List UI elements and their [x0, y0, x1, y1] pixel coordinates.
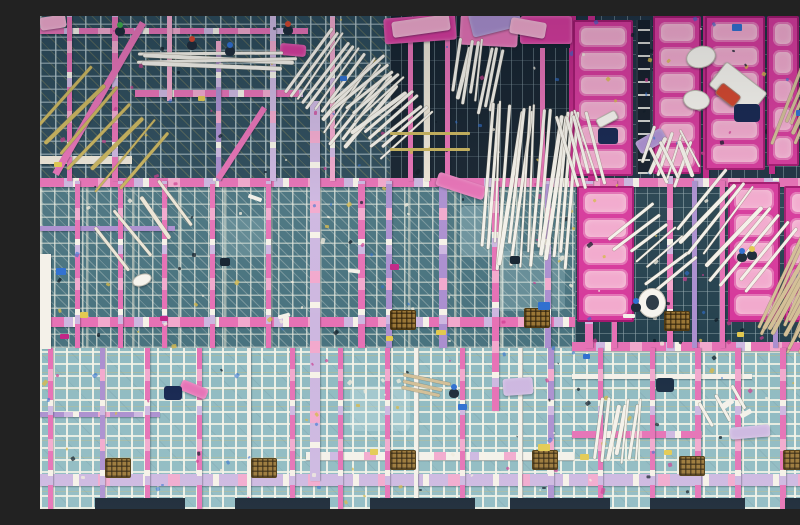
panel-insulation-block	[583, 269, 628, 291]
construction-debris	[54, 162, 62, 167]
formwork-beam-vertical	[266, 181, 271, 348]
debris-speckle	[312, 473, 316, 478]
debris-speckle	[317, 486, 321, 489]
toilet-bowl-opening	[646, 295, 659, 310]
formwork-beam-vertical	[385, 348, 390, 509]
shadow-gap	[650, 498, 745, 509]
rebar-wire-basket	[783, 450, 800, 470]
worker-figure	[746, 246, 758, 260]
pipe-bundle	[591, 393, 644, 466]
formwork-beam-vertical	[358, 181, 365, 348]
formwork-beam-vertical	[445, 34, 450, 181]
formwork-beam-vertical	[439, 181, 447, 348]
construction-debris	[538, 302, 550, 310]
debris-speckle	[360, 200, 364, 204]
worker-figure	[114, 22, 126, 36]
shadow-gap	[95, 498, 185, 509]
formwork-beam-vertical	[650, 348, 655, 509]
toilet-fixture	[638, 288, 666, 318]
construction-debris	[164, 386, 182, 400]
construction-debris	[796, 110, 800, 116]
debris-speckle	[613, 99, 617, 102]
debris-speckle	[785, 77, 788, 80]
construction-debris	[737, 332, 744, 337]
construction-debris	[623, 314, 635, 318]
debris-speckle	[351, 467, 354, 471]
construction-debris	[732, 24, 742, 31]
formwork-beam-vertical	[48, 348, 53, 509]
worker-figure	[186, 36, 198, 50]
formwork-beam-vertical	[40, 254, 51, 349]
formwork-beam-vertical	[145, 348, 150, 509]
rebar-wire-basket	[390, 310, 416, 330]
shadow-gap	[370, 498, 475, 509]
shadow-gap	[235, 498, 330, 509]
debris-speckle	[197, 452, 200, 456]
worker-body	[187, 41, 197, 50]
panel-insulation-block	[711, 46, 759, 66]
construction-debris	[510, 256, 520, 264]
formwork-beam-vertical	[100, 348, 105, 509]
rebar-wire-basket	[664, 311, 690, 331]
shadow-gap	[510, 498, 610, 509]
worker-figure	[448, 384, 460, 398]
debris-speckle	[324, 167, 327, 170]
construction-debris	[598, 128, 618, 144]
debris-speckle	[548, 398, 550, 401]
debris-speckle	[291, 280, 294, 282]
panel-insulation-block	[711, 119, 759, 139]
pipe-bundle	[135, 51, 305, 64]
debris-speckle	[651, 450, 655, 454]
pipe	[112, 210, 151, 257]
formwork-beam-vertical	[460, 348, 465, 509]
worker-body	[747, 251, 757, 260]
panel-insulation-block	[711, 144, 759, 164]
aerial-construction-site-photo	[40, 16, 800, 509]
debris-speckle	[719, 436, 722, 439]
formwork-beam-vertical	[518, 348, 522, 509]
construction-debris	[386, 336, 393, 341]
panel-insulation-block	[579, 26, 627, 47]
shadow-gap	[785, 498, 800, 509]
formwork-beam-vertical	[210, 181, 215, 348]
safety-helmet	[749, 246, 755, 252]
worker-body	[631, 303, 641, 312]
debris-speckle	[448, 296, 450, 299]
debris-speckle	[96, 333, 100, 337]
formwork-beam-vertical	[695, 348, 701, 509]
safety-helmet	[451, 384, 457, 390]
formwork-beam-vertical	[414, 348, 418, 509]
rebar-wire-basket	[524, 308, 550, 328]
pink-panel-scrap	[502, 377, 533, 396]
panel-insulation-block	[659, 22, 695, 43]
safety-helmet	[227, 42, 233, 48]
debris-speckle	[239, 212, 242, 215]
debris-speckle	[644, 92, 647, 96]
debris-speckle	[219, 469, 223, 472]
rebar-wire-basket	[105, 458, 131, 478]
formwork-beam-vertical	[548, 348, 554, 509]
construction-debris	[436, 330, 446, 335]
construction-debris	[583, 354, 590, 359]
worker-figure	[282, 21, 294, 35]
construction-debris	[390, 264, 399, 270]
construction-debris	[390, 148, 470, 151]
worker-body	[449, 389, 459, 398]
safety-helmet	[117, 22, 123, 28]
worker-body	[225, 47, 235, 56]
construction-debris	[458, 404, 467, 410]
construction-debris	[80, 312, 88, 318]
debris-speckle	[395, 406, 399, 410]
safety-helmet	[285, 21, 291, 27]
debris-speckle	[644, 78, 647, 82]
panel-insulation-block	[579, 51, 627, 72]
formwork-beam-vertical	[338, 348, 343, 509]
construction-debris	[198, 96, 205, 101]
formwork-beam-vertical	[247, 348, 251, 509]
construction-debris	[656, 378, 674, 392]
safety-helmet	[739, 248, 745, 254]
panel-insulation-block	[790, 192, 800, 214]
construction-debris	[160, 316, 168, 321]
construction-debris	[56, 268, 66, 275]
construction-debris	[538, 444, 550, 451]
safety-helmet	[189, 36, 195, 42]
formwork-beam-horizontal	[40, 28, 308, 34]
light-patch	[220, 216, 270, 256]
panel-insulation-block	[583, 192, 628, 214]
worker-body	[283, 26, 293, 35]
debris-speckle	[582, 52, 586, 55]
debris-speckle	[81, 476, 86, 479]
formwork-beam-vertical	[780, 348, 786, 509]
construction-debris	[580, 454, 589, 460]
panel-insulation-block	[773, 22, 793, 46]
construction-debris	[390, 132, 470, 135]
pipe	[139, 196, 171, 240]
rebar-wire-basket	[251, 458, 277, 478]
construction-debris	[60, 334, 69, 339]
construction-debris	[734, 104, 760, 122]
light-patch	[350, 386, 410, 431]
debris-speckle	[701, 273, 703, 275]
formwork-beam-vertical	[290, 348, 295, 509]
panel-insulation-block	[579, 75, 627, 96]
construction-debris	[370, 449, 378, 455]
construction-debris	[340, 76, 347, 81]
safety-helmet	[633, 298, 639, 304]
worker-figure	[224, 42, 236, 56]
debris-speckle	[355, 404, 359, 407]
construction-debris	[664, 450, 672, 455]
worker-body	[115, 27, 125, 36]
rebar-wire-basket	[390, 450, 416, 470]
worker-figure	[630, 298, 642, 312]
panel-insulation-block	[583, 294, 628, 316]
rebar-wire-basket	[679, 456, 705, 476]
rebar-wire-basket	[532, 450, 558, 470]
panel-insulation-block	[773, 50, 793, 74]
debris-speckle	[682, 276, 686, 281]
formwork-beam-vertical	[75, 181, 80, 348]
debris-speckle	[398, 485, 402, 489]
construction-debris	[220, 258, 230, 266]
formwork-beam-vertical	[197, 348, 202, 509]
debris-speckle	[533, 66, 536, 69]
debris-speckle	[652, 339, 656, 343]
debris-speckle	[176, 71, 180, 75]
